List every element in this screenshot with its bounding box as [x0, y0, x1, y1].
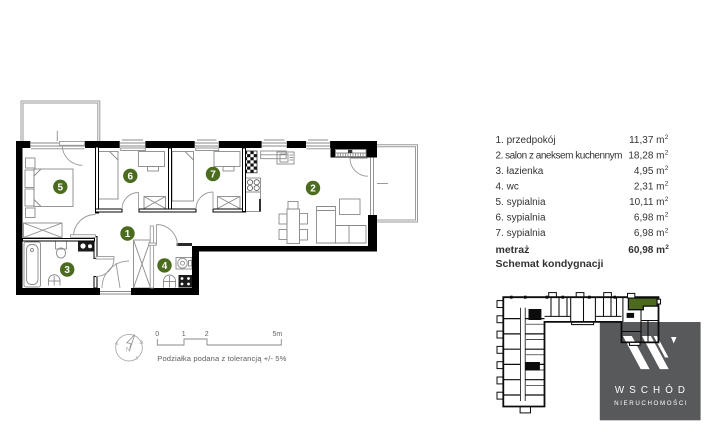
svg-text:4: 4: [162, 261, 168, 272]
svg-text:11,37 m: 11,37 m: [629, 135, 664, 146]
svg-text:Schemat kondygnacji: Schemat kondygnacji: [496, 258, 604, 270]
svg-text:WSCHÓD: WSCHÓD: [615, 385, 690, 396]
svg-text:2. salon z aneksem kuchennym: 2. salon z aneksem kuchennym: [496, 150, 623, 161]
svg-text:2: 2: [665, 150, 669, 157]
svg-text:2: 2: [310, 184, 316, 195]
svg-text:6,98 m: 6,98 m: [634, 228, 665, 239]
svg-text:2: 2: [665, 196, 669, 203]
svg-text:Podziałka podana z tolerancją: Podziałka podana z tolerancją +/- 5%: [157, 354, 286, 363]
svg-text:2: 2: [665, 244, 669, 251]
svg-text:3: 3: [64, 265, 70, 276]
svg-text:2: 2: [665, 181, 669, 188]
svg-text:7: 7: [210, 170, 216, 181]
svg-text:4. wc: 4. wc: [496, 181, 519, 192]
svg-text:6,98 m: 6,98 m: [634, 213, 665, 224]
svg-text:1: 1: [182, 331, 186, 338]
svg-text:6: 6: [128, 171, 134, 182]
svg-text:N: N: [126, 347, 131, 354]
svg-text:4,95 m: 4,95 m: [634, 166, 665, 177]
svg-text:60,98 m: 60,98 m: [628, 245, 665, 256]
svg-text:5. sypialnia: 5. sypialnia: [496, 197, 546, 208]
svg-text:1: 1: [125, 229, 131, 240]
svg-text:2: 2: [665, 134, 669, 141]
svg-text:metraż: metraż: [496, 244, 530, 256]
svg-text:10,11 m: 10,11 m: [629, 197, 664, 208]
svg-text:2: 2: [205, 331, 209, 338]
svg-text:5m: 5m: [273, 331, 283, 338]
svg-text:6. sypialnia: 6. sypialnia: [496, 213, 546, 224]
svg-text:18,28 m: 18,28 m: [628, 150, 664, 161]
svg-text:2: 2: [665, 165, 669, 172]
svg-text:NIERUCHOMOŚCI: NIERUCHOMOŚCI: [614, 399, 688, 407]
svg-text:2,31 m: 2,31 m: [634, 181, 665, 192]
svg-text:2: 2: [665, 212, 669, 219]
svg-text:2: 2: [665, 227, 669, 234]
svg-text:0: 0: [155, 331, 159, 338]
svg-text:5: 5: [58, 182, 64, 193]
svg-text:3. łazienka: 3. łazienka: [496, 166, 544, 177]
svg-text:1. przedpokój: 1. przedpokój: [496, 135, 556, 146]
svg-text:7. sypialnia: 7. sypialnia: [496, 228, 546, 239]
